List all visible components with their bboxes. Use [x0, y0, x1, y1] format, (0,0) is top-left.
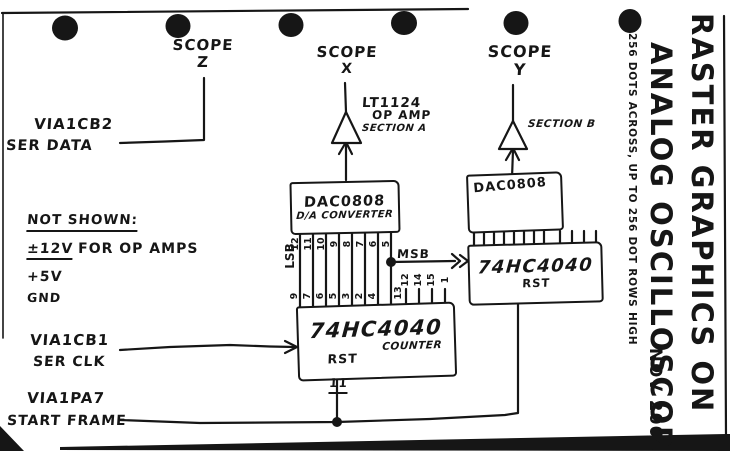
hole-dot — [279, 13, 304, 37]
hole-dot — [391, 11, 417, 35]
ser-data-label: SER DATA — [5, 138, 93, 155]
scope-x-text: SCOPE — [315, 44, 378, 61]
hole-dot — [166, 14, 191, 38]
dac-x-pin: 6 — [368, 235, 380, 253]
counter-x-rst-pin: 11 — [328, 377, 348, 394]
dac-x-kind: D/A CONVERTER — [296, 209, 394, 222]
dac-x-pin: 7 — [355, 235, 367, 253]
power-notes: NOT SHOWN: ±12V FOR OP AMPS +5V GND — [27, 209, 198, 305]
ser-clk-wire — [120, 345, 295, 350]
counter-x-upper-pin: 1 — [440, 271, 452, 289]
counter-x-pin: 7 — [302, 287, 314, 305]
title-detail-note: 256 DOTS ACROSS, UP TO 256 DOT ROWS HIGH — [627, 33, 638, 345]
scope-z-label: SCOPE Z — [168, 37, 238, 72]
counter-x-kind: COUNTER — [382, 339, 443, 353]
card-corner-shadow — [0, 426, 24, 451]
dac-x-pin: 12 — [290, 235, 302, 253]
opamp-x-kind: OP AMP — [372, 109, 432, 123]
dac-x-pin: 5 — [381, 235, 393, 253]
logic-supply-label: +5V — [26, 269, 199, 285]
counter-x-upper-pin: 12 — [400, 271, 412, 289]
ser-data-to-scope-z-wire — [120, 78, 204, 143]
opamp-x-output-wire — [345, 83, 346, 112]
dac-x-box: DAC0808 D/A CONVERTER — [289, 180, 400, 235]
ser-clk-label: SER CLK — [32, 354, 105, 370]
opamp-x-annotation: LT1124 OP AMP SECTION A — [362, 96, 431, 134]
counter-x-upper-pin: 15 — [426, 271, 438, 289]
start-frame-label: START FRAME — [6, 413, 127, 429]
msb-label: MSB — [397, 248, 431, 262]
scope-y-label: SCOPE Y — [484, 43, 556, 80]
via1pa7-port-label: VIA1PA7 — [26, 390, 105, 407]
title-date: NOV 2004 — [647, 348, 664, 451]
scope-x-label: SCOPE X — [316, 44, 378, 77]
opamp-supply-for-label: FOR OP AMPS — [78, 241, 198, 257]
counter-x-pin: 6 — [315, 287, 327, 305]
dac-y-box: DAC0808 — [466, 171, 564, 233]
counter-x-pin: 9 — [289, 287, 301, 305]
dac-x-pin: 10 — [316, 235, 328, 253]
via1cb2-port-label: VIA1CB2 — [33, 116, 113, 133]
via1cb1-port-label: VIA1CB1 — [29, 332, 109, 349]
dac-x-pin: 8 — [342, 235, 354, 253]
scope-y-channel: Y — [483, 61, 556, 79]
start-frame-junction-dot — [332, 417, 342, 427]
schematic-card: DAC0808 D/A CONVERTER DAC0808 74HC4040 C… — [0, 0, 730, 451]
hole-dot — [52, 16, 78, 41]
counter-x-box: 74HC4040 COUNTER RST — [296, 302, 457, 382]
counter-y-box: 74HC4040 RST — [467, 241, 604, 306]
counter-x-pin: 3 — [341, 287, 353, 305]
opamp-supply-label: ±12V — [26, 241, 73, 260]
scope-x-channel: X — [315, 61, 378, 77]
counter-x-pin: 4 — [367, 287, 379, 305]
not-shown-heading: NOT SHOWN: — [26, 213, 138, 232]
card-bottom-shadow — [60, 434, 730, 451]
opamp-x-triangle — [332, 112, 361, 143]
page-title-line1: RASTER GRAPHICS ON — [687, 13, 716, 413]
card-right-edge — [724, 16, 726, 437]
scope-z-channel: Z — [167, 54, 238, 71]
counter-y-rst-label: RST — [521, 277, 550, 291]
hole-dot — [504, 11, 529, 35]
dac-x-pin: 9 — [329, 235, 341, 253]
hole-dot — [619, 9, 642, 33]
dac-x-pin: 11 — [303, 235, 315, 253]
ground-label: GND — [26, 291, 198, 305]
opamp-y-section: SECTION B — [527, 118, 596, 130]
dac-y-name: DAC0808 — [473, 176, 548, 197]
counter-x-upper-pin: 14 — [413, 271, 425, 289]
counter-x-pin: 5 — [328, 287, 340, 305]
opamp-y-triangle — [499, 121, 527, 149]
counter-x-rst-label: RST — [327, 352, 358, 367]
scope-z-text: SCOPE — [167, 37, 238, 54]
scope-y-text: SCOPE — [483, 43, 556, 61]
counter-x-pin: 2 — [354, 287, 366, 305]
opamp-x-section: SECTION A — [361, 123, 431, 134]
